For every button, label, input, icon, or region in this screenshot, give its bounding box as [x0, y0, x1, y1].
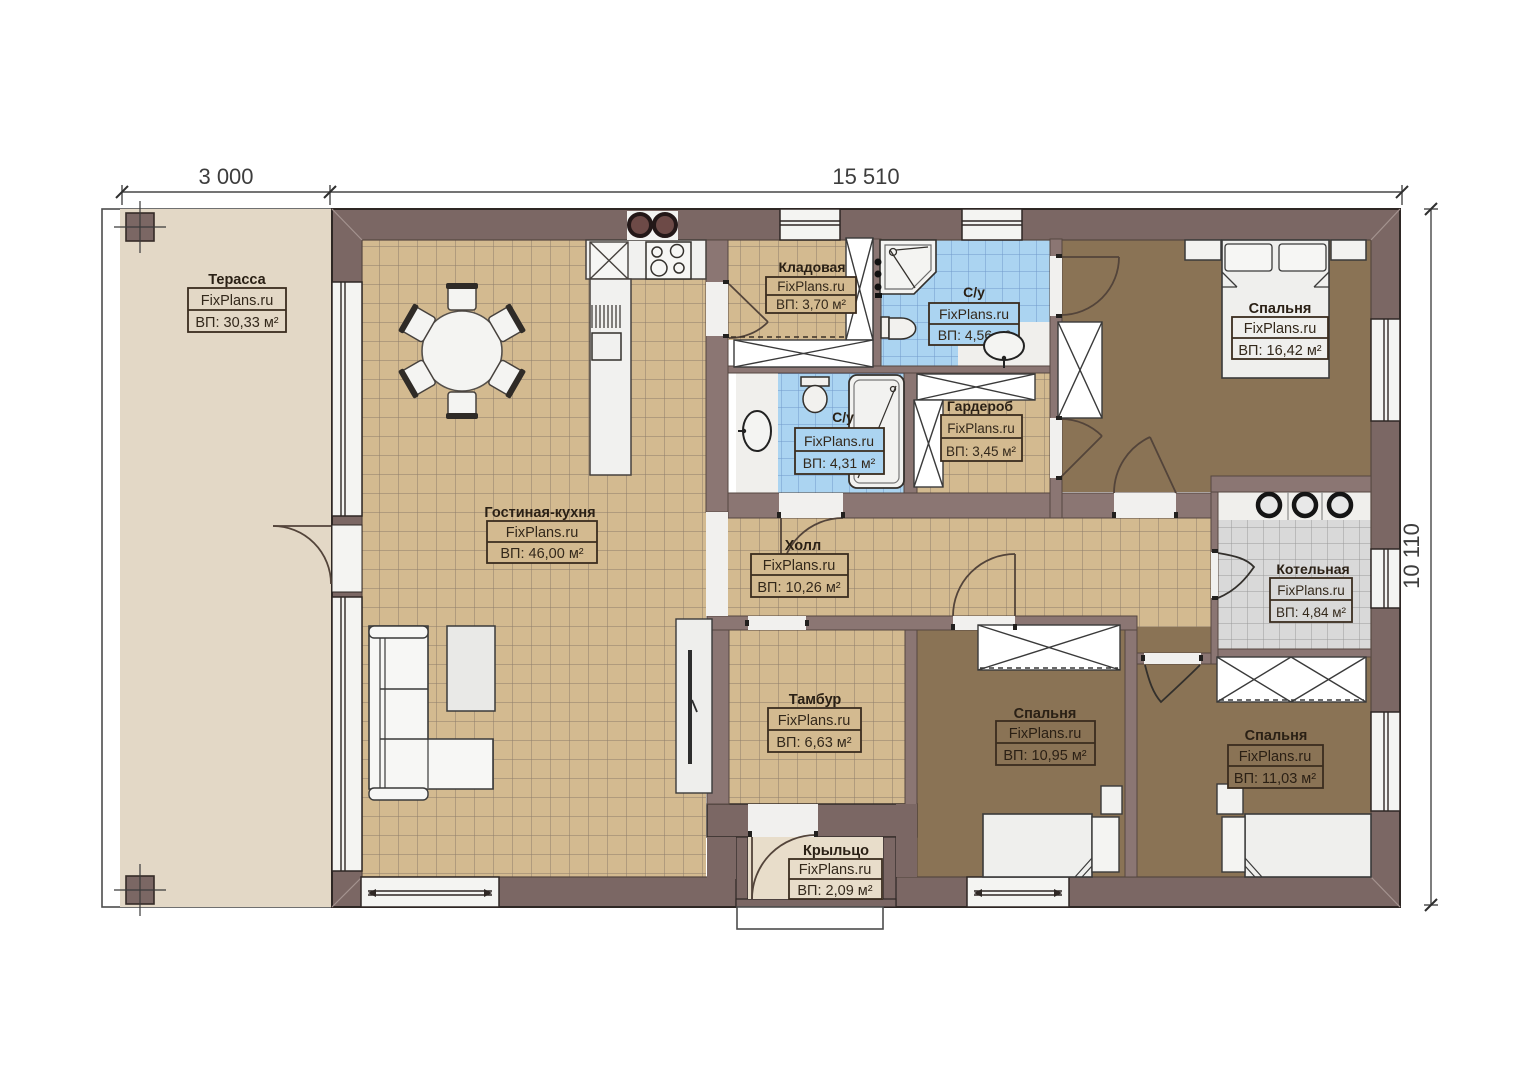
svg-text:Тамбур: Тамбур [789, 692, 842, 708]
svg-text:С/у: С/у [832, 409, 854, 425]
svg-text:С/у: С/у [963, 284, 985, 300]
svg-text:FixPlans.ru: FixPlans.ru [947, 421, 1015, 436]
svg-text:FixPlans.ru: FixPlans.ru [506, 525, 579, 541]
svg-text:FixPlans.ru: FixPlans.ru [201, 293, 274, 309]
svg-text:FixPlans.ru: FixPlans.ru [778, 713, 851, 729]
svg-text:ВП: 30,33 м²: ВП: 30,33 м² [195, 315, 278, 331]
svg-text:Терасса: Терасса [208, 272, 266, 288]
svg-text:Гардероб: Гардероб [947, 398, 1014, 414]
svg-text:Котельная: Котельная [1276, 561, 1349, 577]
svg-text:ВП: 46,00 м²: ВП: 46,00 м² [500, 546, 583, 562]
svg-text:FixPlans.ru: FixPlans.ru [777, 279, 845, 294]
svg-text:ВП: 4,84 м²: ВП: 4,84 м² [1276, 605, 1347, 620]
svg-text:ВП: 3,45 м²: ВП: 3,45 м² [946, 444, 1017, 459]
svg-text:10 110: 10 110 [1399, 523, 1424, 589]
svg-text:FixPlans.ru: FixPlans.ru [804, 433, 874, 449]
svg-text:Холл: Холл [785, 538, 821, 554]
svg-text:Спальня: Спальня [1249, 301, 1312, 317]
svg-text:FixPlans.ru: FixPlans.ru [1009, 726, 1082, 742]
svg-text:ВП: 3,70 м²: ВП: 3,70 м² [776, 297, 847, 312]
svg-text:FixPlans.ru: FixPlans.ru [799, 862, 872, 878]
svg-text:ВП: 11,03 м²: ВП: 11,03 м² [1234, 771, 1316, 787]
svg-text:ВП: 2,09 м²: ВП: 2,09 м² [797, 883, 872, 899]
svg-text:Крыльцо: Крыльцо [803, 843, 869, 859]
svg-text:ВП: 4,31 м²: ВП: 4,31 м² [803, 455, 876, 471]
svg-text:FixPlans.ru: FixPlans.ru [763, 558, 836, 574]
svg-text:ВП: 6,63 м²: ВП: 6,63 м² [776, 735, 851, 751]
svg-text:ВП: 10,95 м²: ВП: 10,95 м² [1003, 748, 1086, 764]
svg-text:Спальня: Спальня [1014, 706, 1077, 722]
svg-text:FixPlans.ru: FixPlans.ru [939, 306, 1009, 322]
svg-text:Спальня: Спальня [1245, 728, 1308, 744]
svg-text:FixPlans.ru: FixPlans.ru [1244, 321, 1317, 337]
svg-text:ВП: 16,42 м²: ВП: 16,42 м² [1238, 343, 1321, 359]
svg-text:3 000: 3 000 [198, 164, 253, 189]
svg-text:15 510: 15 510 [832, 164, 899, 189]
svg-text:FixPlans.ru: FixPlans.ru [1277, 583, 1345, 598]
svg-text:Гостиная-кухня: Гостиная-кухня [484, 505, 595, 521]
svg-text:FixPlans.ru: FixPlans.ru [1239, 749, 1312, 765]
svg-text:ВП: 10,26 м²: ВП: 10,26 м² [757, 580, 840, 596]
svg-text:Кладовая: Кладовая [778, 259, 845, 275]
